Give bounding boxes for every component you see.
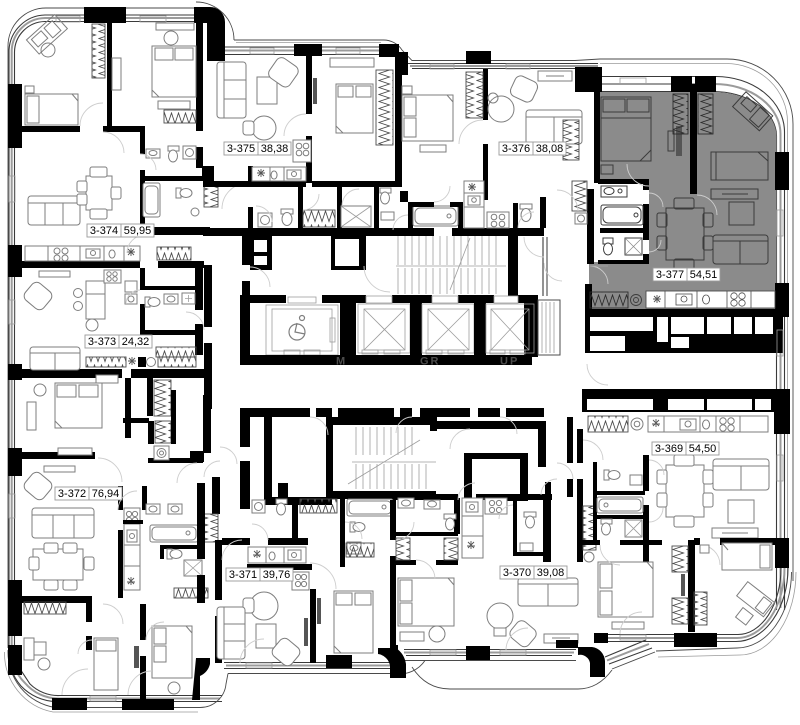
svg-text:M: M	[336, 356, 347, 368]
svg-text:GR: GR	[420, 356, 441, 368]
svg-text:3-373: 3-373	[88, 336, 116, 348]
svg-text:38,38: 38,38	[261, 143, 289, 155]
svg-text:76,94: 76,94	[92, 488, 120, 500]
svg-text:59,95: 59,95	[124, 225, 152, 237]
svg-text:39,08: 39,08	[537, 567, 565, 579]
svg-text:3-369: 3-369	[655, 443, 683, 455]
svg-text:3-371: 3-371	[229, 569, 257, 581]
svg-text:3-377: 3-377	[656, 269, 684, 281]
svg-text:38,08: 38,08	[536, 143, 564, 155]
svg-text:54,50: 54,50	[689, 443, 717, 455]
svg-text:UP: UP	[500, 356, 519, 368]
svg-text:3-370: 3-370	[503, 567, 531, 579]
svg-text:3-376: 3-376	[502, 143, 530, 155]
svg-text:3-372: 3-372	[58, 488, 86, 500]
svg-text:24,32: 24,32	[122, 336, 150, 348]
svg-text:39,76: 39,76	[263, 569, 291, 581]
svg-text:54,51: 54,51	[690, 269, 718, 281]
svg-text:3-375: 3-375	[227, 143, 255, 155]
svg-text:3-374: 3-374	[90, 225, 118, 237]
